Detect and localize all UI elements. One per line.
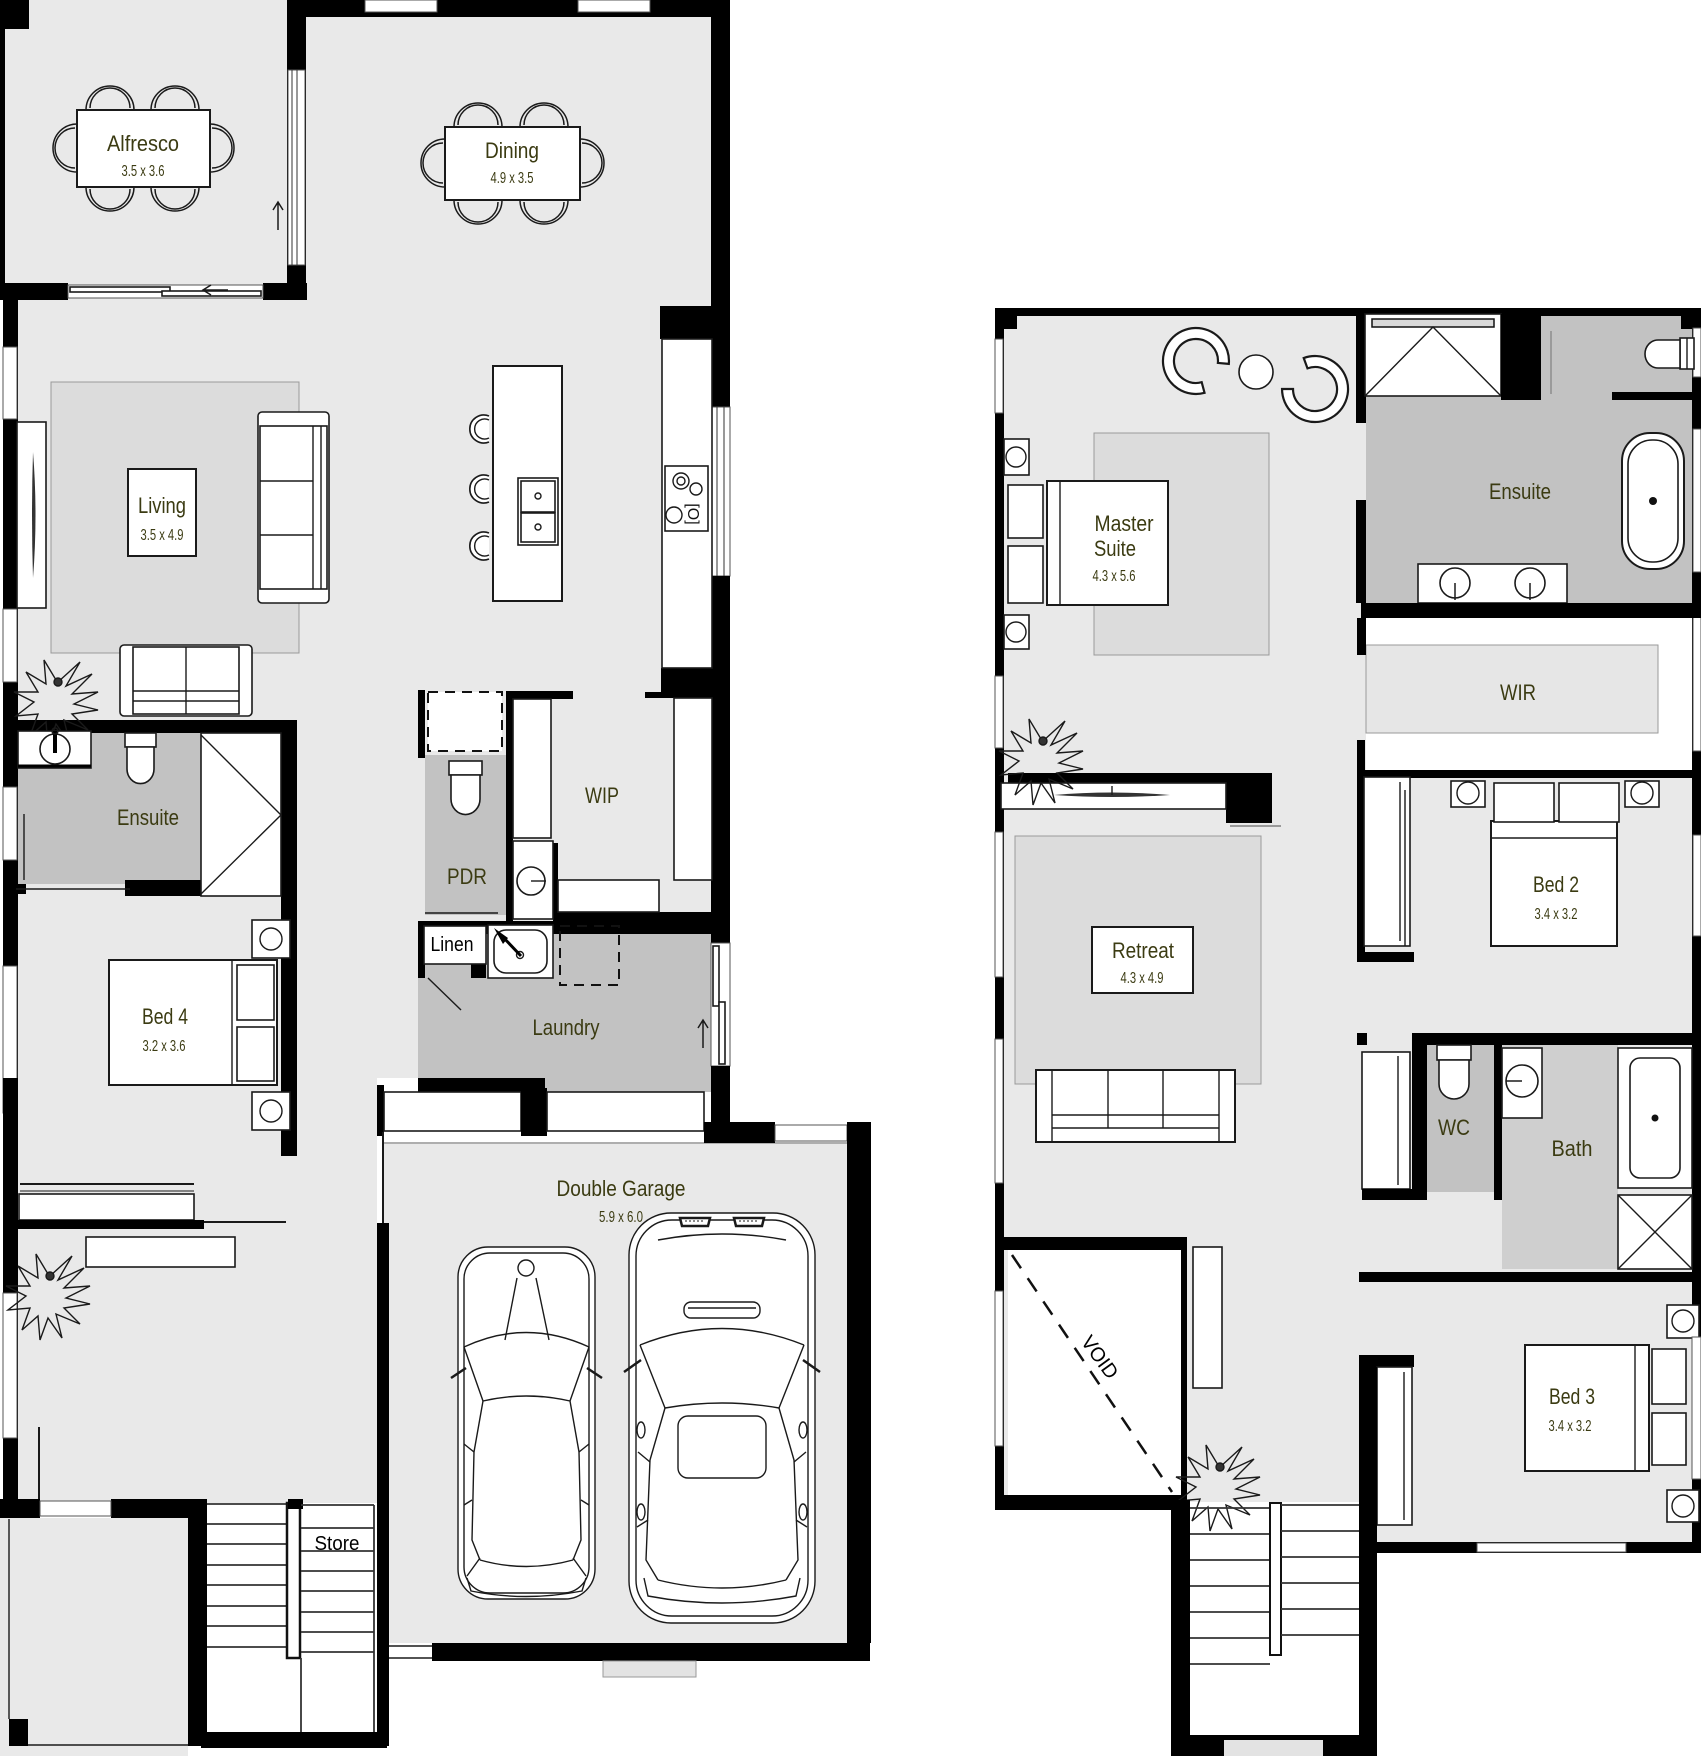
svg-text:PDR: PDR	[447, 864, 487, 889]
svg-text:Laundry: Laundry	[533, 1015, 601, 1040]
svg-text:Linen: Linen	[431, 934, 474, 956]
svg-text:3.5 x 3.6: 3.5 x 3.6	[122, 163, 165, 180]
svg-text:3.4 x 3.2: 3.4 x 3.2	[1549, 1418, 1592, 1435]
svg-text:4.9 x 3.5: 4.9 x 3.5	[491, 170, 534, 187]
svg-text:Ensuite: Ensuite	[117, 805, 179, 830]
svg-text:3.4 x 3.2: 3.4 x 3.2	[1535, 906, 1578, 923]
svg-text:Bed 4: Bed 4	[142, 1004, 188, 1029]
svg-text:3.2 x 3.6: 3.2 x 3.6	[143, 1038, 186, 1055]
svg-text:Store: Store	[315, 1533, 360, 1555]
svg-text:Retreat: Retreat	[1112, 938, 1175, 963]
svg-text:Bath: Bath	[1552, 1136, 1593, 1161]
svg-text:5.9 x 6.0: 5.9 x 6.0	[599, 1209, 643, 1226]
svg-text:Bed 3: Bed 3	[1549, 1384, 1595, 1409]
svg-text:Bed 2: Bed 2	[1533, 872, 1579, 897]
svg-text:4.3 x 4.9: 4.3 x 4.9	[1121, 970, 1164, 987]
svg-text:[O]: [O]	[684, 503, 701, 524]
svg-text:Master: Master	[1095, 511, 1154, 536]
svg-text:Suite: Suite	[1094, 536, 1136, 561]
svg-text:3.5 x 4.9: 3.5 x 4.9	[141, 527, 184, 544]
svg-text:WIR: WIR	[1500, 680, 1536, 705]
svg-text:Living: Living	[138, 493, 186, 518]
svg-text:WC: WC	[1438, 1115, 1470, 1140]
svg-text:WIP: WIP	[585, 783, 619, 808]
svg-text:Dining: Dining	[485, 138, 539, 163]
svg-text:Double Garage: Double Garage	[557, 1176, 686, 1201]
svg-text:Ensuite: Ensuite	[1489, 479, 1551, 504]
svg-text:4.3 x 5.6: 4.3 x 5.6	[1093, 568, 1136, 585]
svg-text:Alfresco: Alfresco	[107, 131, 179, 156]
